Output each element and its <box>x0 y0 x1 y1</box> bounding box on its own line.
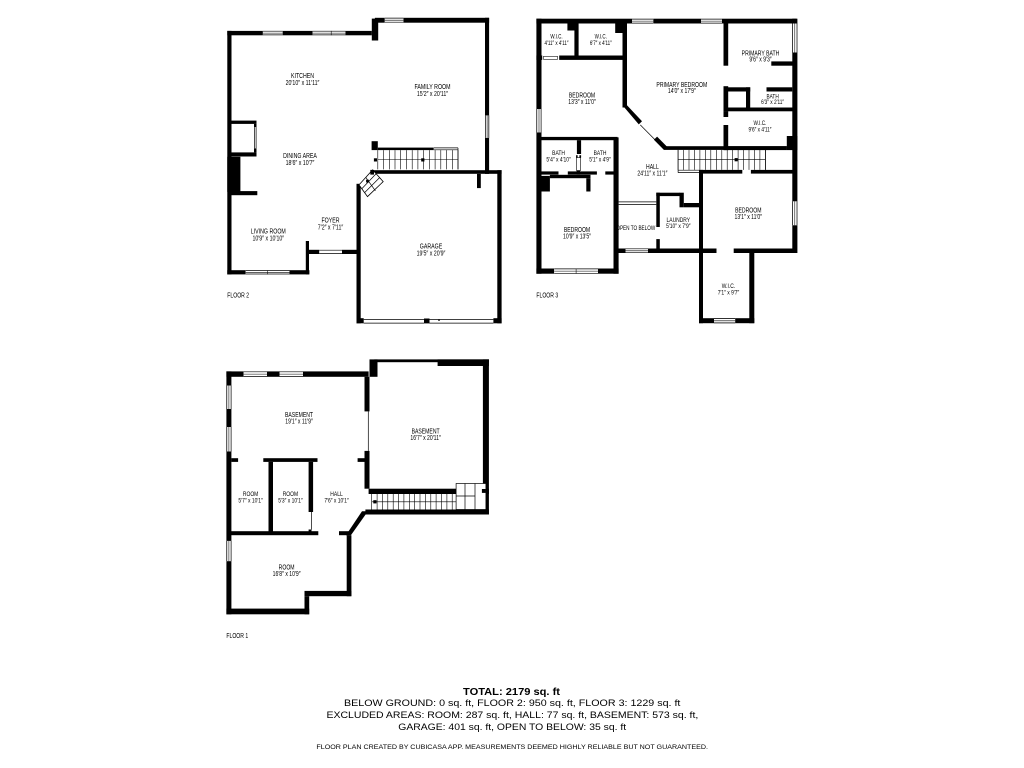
svg-text:14′0″ x 17′9″: 14′0″ x 17′9″ <box>668 87 697 95</box>
svg-text:EXCLUDED AREAS: ROOM: 287 sq.: EXCLUDED AREAS: ROOM: 287 sq. ft, HALL: … <box>327 710 699 720</box>
svg-text:OPEN TO BELOW: OPEN TO BELOW <box>616 226 656 233</box>
svg-text:5′4″ x 4′10″: 5′4″ x 4′10″ <box>546 157 570 164</box>
svg-text:13′3″ x 11′0″: 13′3″ x 11′0″ <box>568 98 596 106</box>
svg-text:15′2″ x 20′11″: 15′2″ x 20′11″ <box>417 90 449 98</box>
svg-text:FLOOR 1: FLOOR 1 <box>226 632 248 640</box>
svg-text:10′9″ x 13′5″: 10′9″ x 13′5″ <box>563 233 592 241</box>
svg-text:10′9″ x 10′10″: 10′9″ x 10′10″ <box>252 235 284 243</box>
svg-text:7′1″ x 9′7″: 7′1″ x 9′7″ <box>718 290 740 297</box>
svg-text:BELOW GROUND: 0 sq. ft, FLOOR: BELOW GROUND: 0 sq. ft, FLOOR 2: 950 sq.… <box>344 698 681 708</box>
svg-text:19′1″ x 11′9″: 19′1″ x 11′9″ <box>285 418 313 426</box>
svg-text:FLOOR PLAN CREATED BY CUBICASA: FLOOR PLAN CREATED BY CUBICASA APP. MEAS… <box>316 744 708 751</box>
svg-text:16′7″ x 20′11″: 16′7″ x 20′11″ <box>410 434 441 442</box>
svg-text:18′6″ x 10′7″: 18′6″ x 10′7″ <box>286 159 315 167</box>
svg-text:13′1″ x 11′0″: 13′1″ x 11′0″ <box>735 213 763 221</box>
svg-text:7′2″ x 7′11″: 7′2″ x 7′11″ <box>318 224 344 232</box>
svg-text:TOTAL: 2179 sq. ft: TOTAL: 2179 sq. ft <box>463 687 561 698</box>
svg-text:6′7″ x 4′11″: 6′7″ x 4′11″ <box>590 40 612 47</box>
svg-text:4′11″ x 4′11″: 4′11″ x 4′11″ <box>544 40 568 47</box>
svg-text:FLOOR 2: FLOOR 2 <box>227 292 249 300</box>
svg-text:5′7″ x 10′1″: 5′7″ x 10′1″ <box>238 498 262 505</box>
svg-text:9′6″ x 9′3″: 9′6″ x 9′3″ <box>749 56 772 64</box>
svg-text:5′10″ x 7′9″: 5′10″ x 7′9″ <box>666 224 690 231</box>
svg-text:GARAGE: 401 sq. ft, OPEN TO BE: GARAGE: 401 sq. ft, OPEN TO BELOW: 35 sq… <box>398 722 626 732</box>
svg-text:20′10″ x 11′11″: 20′10″ x 11′11″ <box>286 79 320 87</box>
svg-text:16′8″ x 10′9″: 16′8″ x 10′9″ <box>273 570 302 578</box>
svg-text:24′11″ x 11′1″: 24′11″ x 11′1″ <box>637 170 668 178</box>
svg-text:5′1″ x 4′9″: 5′1″ x 4′9″ <box>589 157 611 164</box>
svg-text:7′6″ x 10′1″: 7′6″ x 10′1″ <box>324 498 348 505</box>
svg-text:5′3″ x 10′1″: 5′3″ x 10′1″ <box>278 498 302 505</box>
svg-text:9′6″ x 4′11″: 9′6″ x 4′11″ <box>749 127 772 134</box>
svg-text:FLOOR 3: FLOOR 3 <box>536 292 558 300</box>
svg-text:19′5″ x 20′9″: 19′5″ x 20′9″ <box>417 250 446 258</box>
svg-text:6′3″ x 2′11″: 6′3″ x 2′11″ <box>761 100 784 107</box>
